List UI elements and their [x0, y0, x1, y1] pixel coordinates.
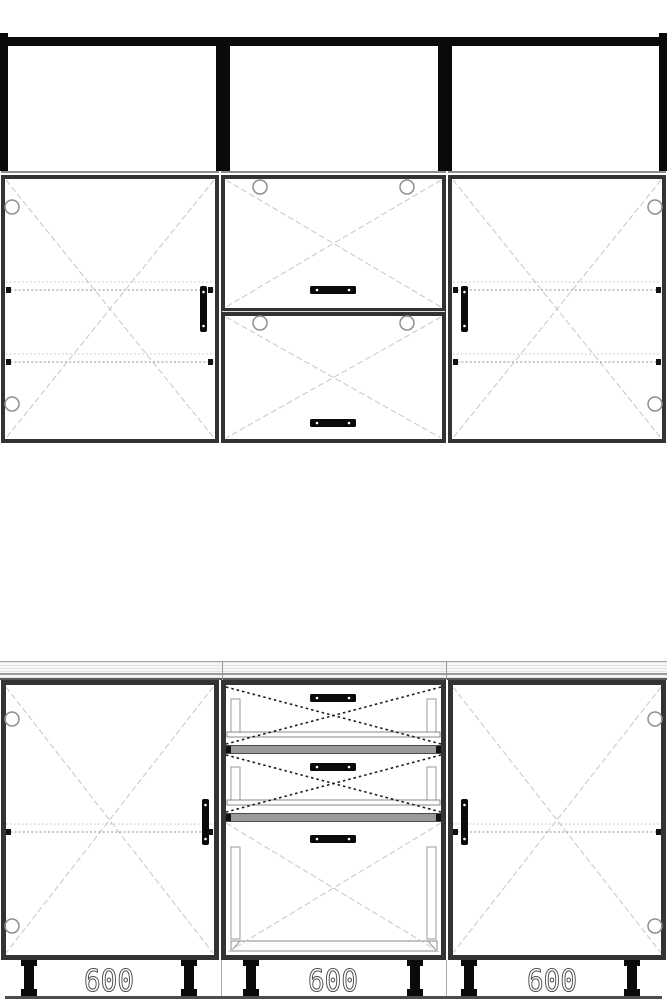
- width-label-left: 600: [84, 964, 134, 999]
- countertop-joint-right: [446, 661, 447, 680]
- countertop: [0, 661, 667, 680]
- cabinet-leg: [184, 960, 194, 996]
- countertop-joint-left: [222, 661, 223, 680]
- drawer-separator-1: [226, 745, 441, 754]
- countertop-edge-line: [0, 673, 667, 675]
- cabinet-leg: [627, 960, 637, 996]
- wall-unit-right-door: [448, 175, 666, 443]
- floor-line: [5, 996, 662, 999]
- base-unit-right-door: [448, 680, 666, 960]
- drawer-separator-2: [226, 813, 441, 822]
- cabinet-leg: [410, 960, 420, 996]
- wall-unit-middle-top-edge: [221, 171, 446, 173]
- ceiling-frame-top-bar: [0, 37, 667, 46]
- wall-unit-middle-flap-door-top: [221, 175, 446, 312]
- wall-unit-left-top-edge: [1, 171, 219, 173]
- ceiling-frame-post-mid-right: [438, 37, 452, 171]
- cabinet-leg: [24, 960, 34, 996]
- cabinet-leg: [246, 960, 256, 996]
- ceiling-frame-post-left: [0, 33, 8, 171]
- base-unit-left-door: [1, 680, 219, 960]
- cabinet-elevation-drawing: 600 600 600: [0, 0, 667, 1000]
- plinth-panel-line-right: [446, 960, 447, 996]
- ceiling-frame-post-right: [659, 33, 667, 171]
- ceiling-frame-post-mid-left: [216, 37, 230, 171]
- plinth-panel-line-left: [221, 960, 222, 996]
- width-label-right: 600: [527, 964, 577, 999]
- wall-unit-middle-door-gap: [222, 311, 445, 312]
- cabinet-leg: [464, 960, 474, 996]
- width-label-middle: 600: [308, 964, 358, 999]
- wall-unit-left-door: [1, 175, 219, 443]
- wall-unit-middle-flap-door-bottom: [221, 312, 446, 443]
- wall-unit-right-top-edge: [448, 171, 666, 173]
